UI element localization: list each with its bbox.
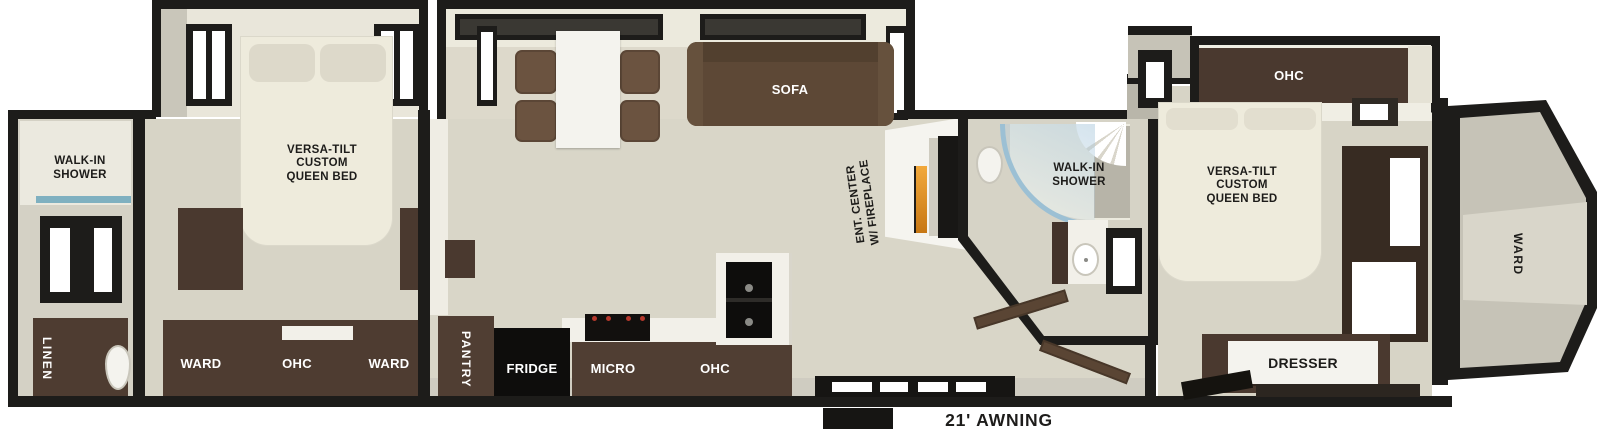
rear-bath-shower-label: WALK-IN SHOWER [28,148,132,190]
micro-label: MICRO [578,358,648,380]
fridge-label: FRIDGE [497,358,567,380]
range-knob-3 [626,316,631,321]
rear-bed-pillow-left [249,44,315,82]
fireplace-insert [916,166,927,233]
range-knob-2 [606,316,611,321]
rear-ward-right-label: WARD [356,352,422,376]
rear-bedroom-headboard-right [400,208,418,290]
dresser-label: DRESSER [1238,350,1368,376]
front-window-lower-pane [1352,262,1416,334]
front-bedroom-side-window-pane [1146,62,1164,98]
exterior-wall-left [8,110,18,407]
pantry-label: PANTRY [453,324,479,394]
front-window-upper-pane [1390,158,1420,246]
entry-landing-slat-4 [956,382,986,392]
dinette-chair-1 [515,50,557,94]
rear-slide-sidewall [161,9,187,117]
bottom-wall [8,396,1452,407]
front-bed-label: VERSA-TILT CUSTOM QUEEN BED [1172,158,1312,214]
dinette-chair-4 [620,100,660,142]
linen-label: LINEN [36,328,58,390]
tv-screen [938,136,958,238]
dinette-chair-3 [620,50,660,94]
front-bed-pillow-left [1166,108,1238,130]
front-slide-window-pane [1360,104,1388,120]
kitchen-upper-cabinet [445,240,475,278]
entry-landing-slat-3 [918,382,948,392]
sink-drain-2 [745,318,753,326]
rear-bed-window-left-mullion [206,31,212,99]
front-bedroom-left-wall [1145,336,1156,400]
dresser-shadow-strip [1256,384,1420,397]
mid-bath-window-pane [1113,238,1135,286]
sofa-arm-left [687,42,703,126]
front-bed-pillow-right [1244,108,1316,130]
rear-bed-pillow-right [320,44,386,82]
sofa-label: SOFA [752,78,828,102]
kitchen-wall-strip [430,119,448,315]
sofa-window-glass [705,19,861,35]
rear-bed-window-right-mullion [394,31,400,99]
rear-bath-window-mullion [70,226,94,294]
rear-shower-glass [36,196,131,203]
kitchen-ohc-label: OHC [680,358,750,380]
sofa-arm-right [878,42,894,126]
front-bedroom-right-wall [1432,98,1448,385]
front-ohc-label: OHC [1254,64,1324,88]
entry-landing-slat-2 [880,382,908,392]
rear-ward-left-label: WARD [168,352,234,376]
rear-ohc-label: OHC [262,352,332,376]
vanity-sink-drain [1084,258,1088,262]
vanity-side [1052,222,1068,284]
sink-drain-1 [745,284,753,292]
range-knob-1 [592,316,597,321]
wall-bath-bedroom [133,110,145,407]
ward-cap-label: WARD [1504,224,1532,284]
front-wedge-top-edge [1128,26,1192,35]
rear-bedroom-counter [282,326,353,340]
dinette-chair-2 [515,100,557,142]
rear-bedroom-headboard-left [178,208,243,290]
awning-label: 21' AWNING [917,408,1081,432]
kitchen-sink-divider [726,298,772,302]
entry-landing-slat-1 [832,382,872,392]
range-knob-4 [640,316,645,321]
rear-bed-label: VERSA-TILT CUSTOM QUEEN BED [252,136,392,192]
mid-bath-shower-label: WALK-IN SHOWER [1036,156,1122,196]
living-slide-window-left-pane [481,32,493,100]
dinette-table [556,31,620,148]
sofa-backrest [687,42,894,62]
entry-step-exterior [823,408,893,429]
rv-floorplan: WALK-IN SHOWER LINEN VERSA-TILT CUSTOM Q… [0,0,1600,433]
front-slide-endwall [1408,46,1432,103]
